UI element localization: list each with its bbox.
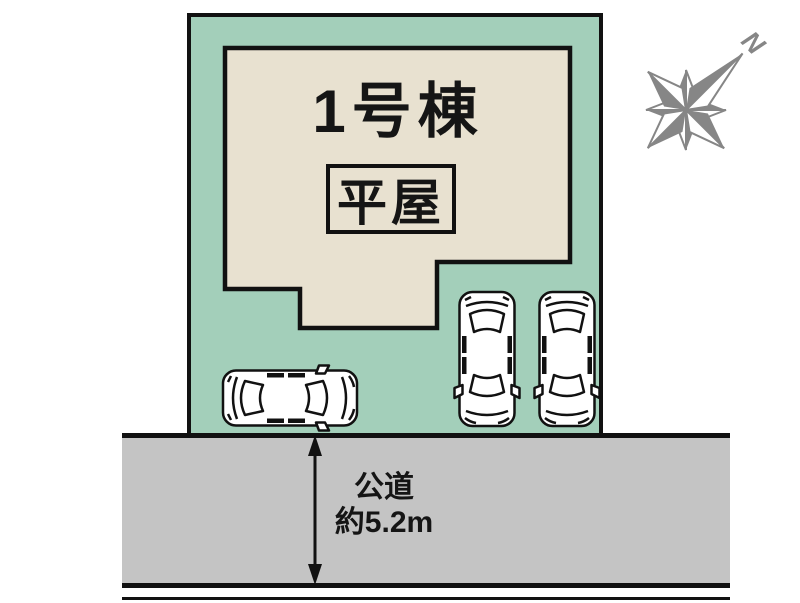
site-plan-canvas: 1号棟 平屋 [0,0,800,603]
building-name-label: 1号棟 [225,80,571,144]
road-far-edge-line [122,597,730,600]
compass-rose-icon: N [622,15,772,175]
single-story-badge-label: 平屋 [337,163,445,235]
car-icon [220,367,360,429]
road-width-label: 公道 約5.2m [288,470,480,540]
car-icon [456,289,518,429]
road-name-text: 公道 [288,470,480,505]
road-width-text: 約5.2m [288,505,480,540]
single-story-badge: 平屋 [326,164,456,234]
car-icon [536,289,598,429]
